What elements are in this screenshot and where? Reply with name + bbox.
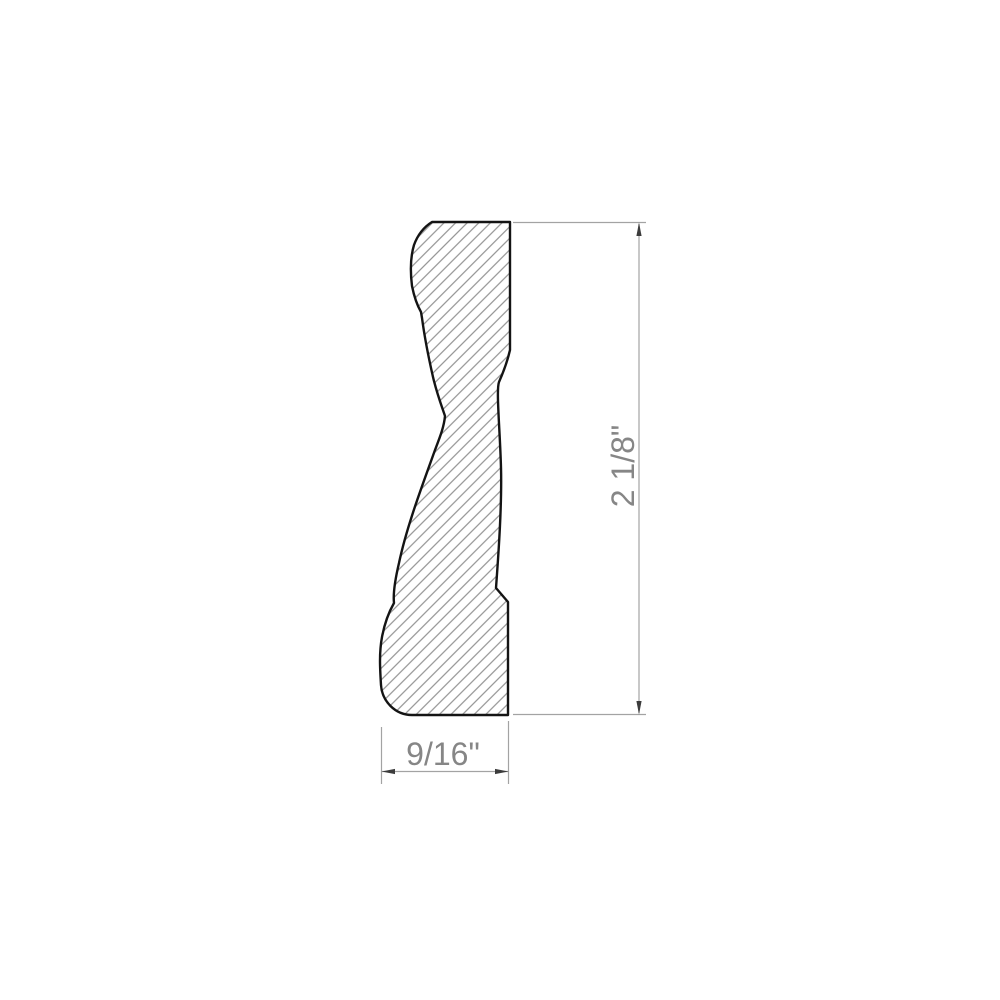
arrow-left-icon	[382, 769, 396, 774]
width-dimension: 9/16"	[382, 721, 509, 784]
height-dimension: 2 1/8"	[513, 223, 646, 715]
height-dimension-label: 2 1/8"	[605, 425, 641, 508]
arrow-down-icon	[636, 701, 641, 715]
width-dimension-label: 9/16"	[406, 736, 480, 772]
molding-profile-drawing: 2 1/8" 9/16"	[0, 0, 1000, 1000]
molding-profile-shape	[380, 222, 510, 715]
drawing-canvas: 2 1/8" 9/16"	[0, 0, 1000, 1000]
arrow-right-icon	[495, 769, 509, 774]
arrow-up-icon	[636, 223, 641, 237]
